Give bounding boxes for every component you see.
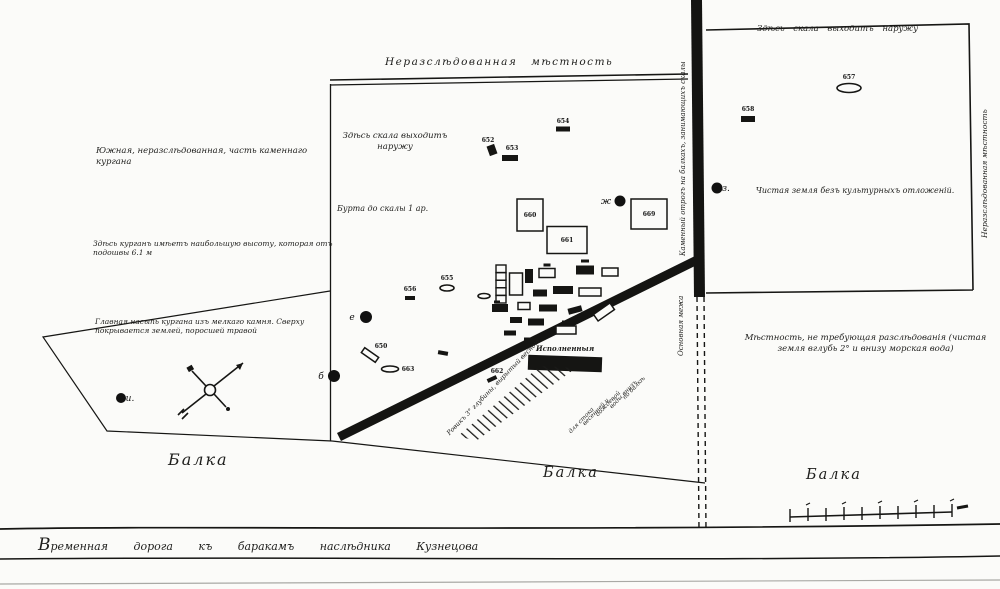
feature-ladder xyxy=(496,265,506,303)
svg-text:652: 652 xyxy=(482,137,495,144)
feature-dot-i: и. xyxy=(116,393,134,404)
feature-filled xyxy=(525,269,533,283)
note-road: Временная дорога къ баракамъ наслѣдника … xyxy=(38,535,478,556)
feature-655: 655 xyxy=(440,275,454,291)
note-clean-soil: Чистая земля безъ культурныхъ отложеній. xyxy=(755,186,955,196)
svg-text:655: 655 xyxy=(441,275,454,282)
feature-filled xyxy=(553,286,573,294)
note-no-research: Мѣстность, не требующая разслѣдованія (ч… xyxy=(733,333,998,354)
note-ridge-vertical-lower: Основная межа xyxy=(677,296,686,356)
top-boundary-line xyxy=(330,74,688,80)
feature-mark xyxy=(494,301,500,304)
ridge-dashed-1 xyxy=(697,297,699,530)
feature-mark xyxy=(544,264,551,267)
feature-rect-outline xyxy=(556,326,576,334)
note-southern-part: Южная, неразслѣдованная, часть каменнаго… xyxy=(96,146,331,167)
svg-text:з.: з. xyxy=(722,184,730,194)
svg-text:654: 654 xyxy=(557,118,570,125)
feature-dot-z: з. xyxy=(712,183,731,195)
feature-652: 652 xyxy=(482,137,498,156)
svg-text:669: 669 xyxy=(643,211,656,218)
svg-text:658: 658 xyxy=(742,106,755,113)
ridge-dashed-2 xyxy=(704,297,706,530)
svg-text:657: 657 xyxy=(843,74,856,81)
note-mound-fill: Главная насыпь кургана изъ мелкаго камня… xyxy=(95,317,355,336)
feature-650: 650 xyxy=(361,343,387,362)
road-line-faint xyxy=(0,580,1000,584)
feature-658: 658 xyxy=(741,106,755,122)
svg-text:ж: ж xyxy=(601,197,612,207)
plan-linework: 654652653657658660661669жз.еби.655656650… xyxy=(0,0,1000,589)
right-panel-outline xyxy=(706,24,973,293)
svg-text:660: 660 xyxy=(524,212,537,219)
label-balka-center: Балка xyxy=(543,464,599,482)
feature-filled xyxy=(528,319,544,326)
road-line-top xyxy=(0,524,1000,529)
feature-663: 663 xyxy=(382,366,415,373)
svg-text:650: 650 xyxy=(375,343,388,350)
feature-660: 660 xyxy=(517,199,543,231)
feature-filled xyxy=(492,304,508,312)
svg-text:653: 653 xyxy=(506,145,519,152)
central-bottom-edge xyxy=(332,441,705,483)
feature-mark xyxy=(581,260,589,263)
feature-653: 653 xyxy=(502,145,518,161)
feature-rect-outline xyxy=(510,273,523,295)
feature-rect-outline xyxy=(518,303,530,310)
excavation-plan: 654652653657658660661669жз.еби.655656650… xyxy=(0,0,1000,589)
feature-filled xyxy=(576,266,594,275)
feature-mark-a xyxy=(438,350,449,356)
scale-bar xyxy=(790,499,968,522)
feature-661: 661 xyxy=(547,227,587,254)
feature-rect-outline xyxy=(579,288,601,296)
note-greatest-height: Здѣсь курганъ имѣетъ наибольшую высоту, … xyxy=(93,239,343,258)
feature-dot-b: б xyxy=(318,370,340,382)
stone-ridge-strip xyxy=(691,0,705,297)
note-ridge-vertical-upper: Каменный отрогъ на балкахъ, занимающихъ … xyxy=(679,61,688,256)
road-line-bottom xyxy=(0,556,1000,559)
note-unexplored-right-vertical: Неразслѣдованная мѣстность xyxy=(980,109,989,238)
feature-filled xyxy=(504,331,516,336)
feature-669: 669 xyxy=(631,199,667,229)
feature-filled xyxy=(539,305,557,312)
svg-text:и.: и. xyxy=(126,394,135,404)
note-depth-to-rock: Бурта до скалы 1 ар. xyxy=(337,204,428,214)
feature-654: 654 xyxy=(556,118,570,132)
svg-text:656: 656 xyxy=(404,286,417,293)
note-unexplored-top: Неразслѣдованная мѣстность xyxy=(385,56,613,69)
feature-filled xyxy=(510,317,522,323)
feature-mark xyxy=(562,321,570,324)
feature-dot-zh: ж xyxy=(601,196,626,208)
south-polygon xyxy=(43,291,332,441)
feature-oval-outline xyxy=(478,294,490,299)
note-rock-outcrop-center: Здѣсь скала выходитъ наружу xyxy=(335,131,455,152)
feature-657: 657 xyxy=(837,74,861,93)
feature-656: 656 xyxy=(404,286,417,300)
feature-rect-outline xyxy=(602,268,618,276)
note-rock-outcrop-right: Здѣсь скала выходитъ наружу xyxy=(757,24,918,35)
label-balka-right: Балка xyxy=(806,466,862,484)
feature-filled xyxy=(533,290,547,297)
note-trench-caption: Исполненныя xyxy=(536,345,594,354)
svg-text:663: 663 xyxy=(402,366,415,373)
svg-text:661: 661 xyxy=(561,237,574,244)
feature-rect-outline xyxy=(539,269,555,278)
svg-text:б: б xyxy=(318,371,324,382)
label-balka-left: Балка xyxy=(168,450,229,470)
compass-rose xyxy=(178,363,243,419)
